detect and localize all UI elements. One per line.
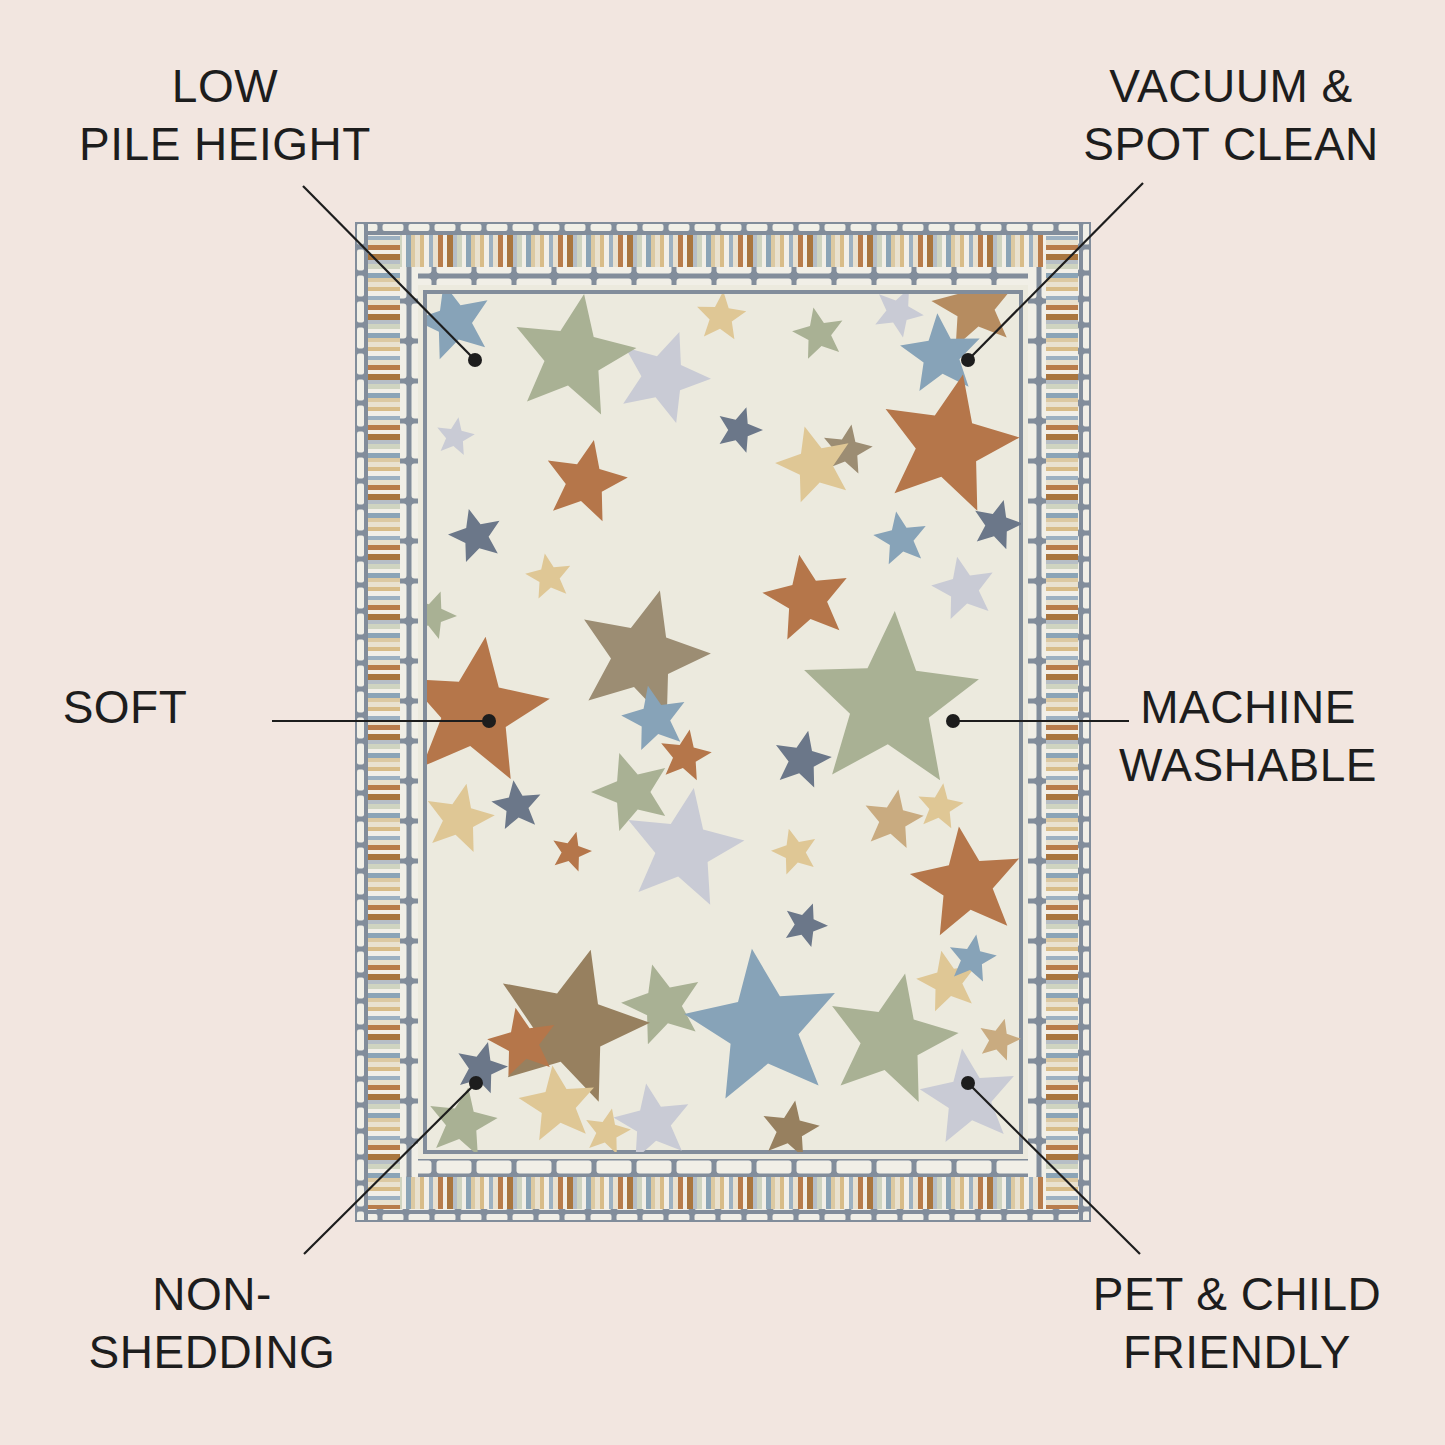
feature-text-line: NON- [42, 1265, 382, 1323]
feature-label-machine-washable: MACHINE WASHABLE [1078, 678, 1418, 794]
rug-infographic: LOW PILE HEIGHT VACUUM & SPOT CLEAN SOFT… [0, 0, 1445, 1445]
feature-text-line: SOFT [25, 678, 225, 736]
callout-dot-pet-child-friendly [961, 1076, 975, 1090]
feature-text-line: SPOT CLEAN [1061, 115, 1401, 173]
callout-dot-vacuum-spot-clean [961, 353, 975, 367]
rug-ladder-outer-top [357, 224, 1089, 235]
rug-ladder-inner-bottom [400, 1159, 1046, 1177]
rug-stripes-top [368, 235, 1078, 267]
feature-text-line: LOW [55, 57, 395, 115]
feature-label-soft: SOFT [25, 678, 225, 736]
feature-text-line: WASHABLE [1078, 736, 1418, 794]
rug-ladder-outer-bottom [357, 1209, 1089, 1220]
feature-label-vacuum-spot-clean: VACUUM & SPOT CLEAN [1061, 57, 1401, 173]
callout-dot-soft [482, 714, 496, 728]
feature-label-pet-child-friendly: PET & CHILD FRIENDLY [1067, 1265, 1407, 1381]
feature-text-line: PILE HEIGHT [55, 115, 395, 173]
rug-ladder-inner-top [400, 267, 1046, 285]
feature-text-line: MACHINE [1078, 678, 1418, 736]
feature-text-line: SHEDDING [42, 1323, 382, 1381]
callout-dot-machine-washable [946, 714, 960, 728]
callout-dot-non-shedding [469, 1076, 483, 1090]
feature-text-line: PET & CHILD [1067, 1265, 1407, 1323]
callout-dot-low-pile [468, 353, 482, 367]
feature-label-low-pile-height: LOW PILE HEIGHT [55, 57, 395, 173]
rug-stripes-bottom [368, 1177, 1078, 1209]
feature-label-non-shedding: NON- SHEDDING [42, 1265, 382, 1381]
feature-text-line: VACUUM & [1061, 57, 1401, 115]
feature-text-line: FRIENDLY [1067, 1323, 1407, 1381]
